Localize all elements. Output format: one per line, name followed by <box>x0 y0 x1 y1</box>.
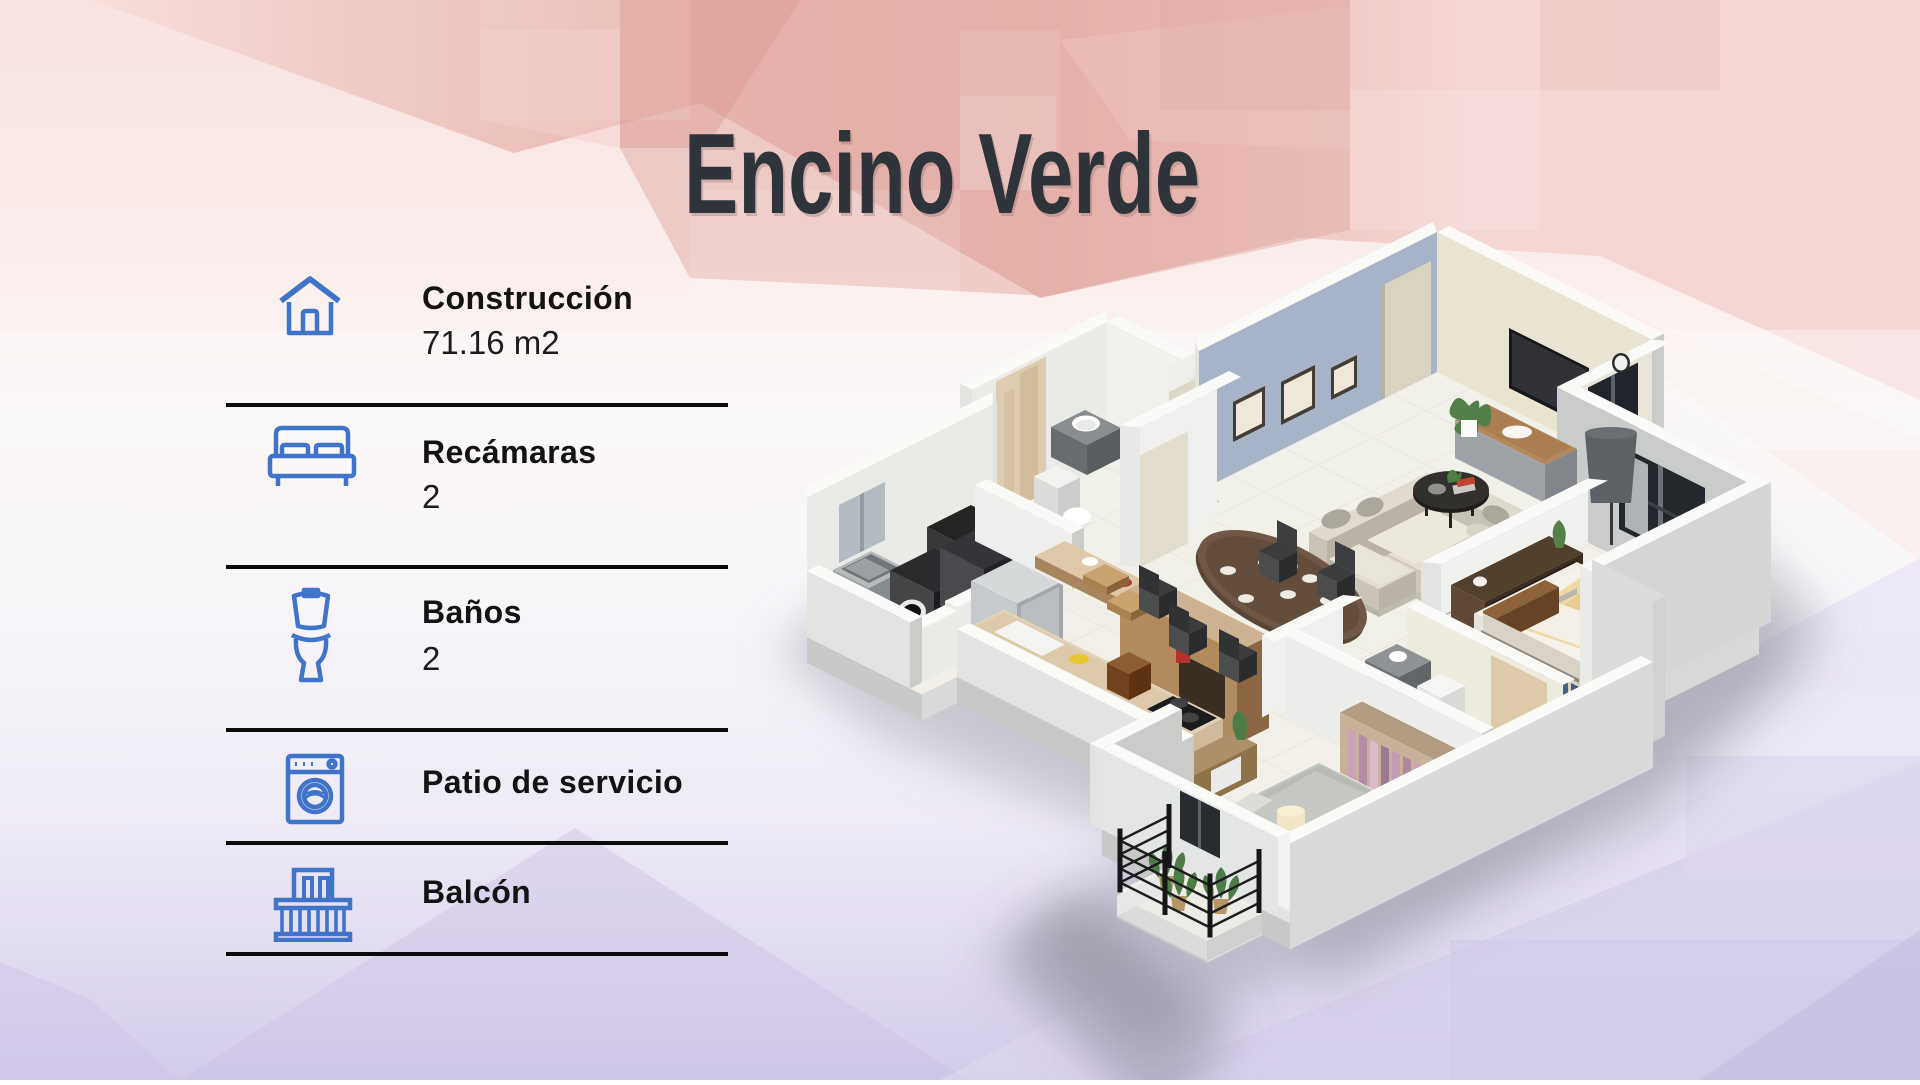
svg-text:Encino Verde: Encino Verde <box>684 111 1200 238</box>
